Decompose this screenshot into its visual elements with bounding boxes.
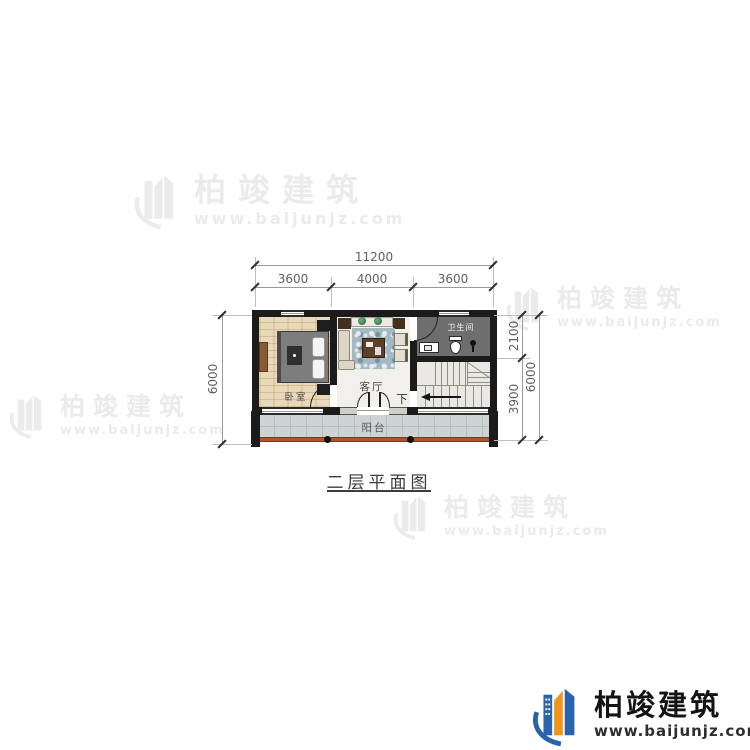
brand-building-icon bbox=[390, 489, 434, 543]
dim-top-overall: 11200 bbox=[334, 250, 414, 264]
stair-tread-line bbox=[441, 362, 442, 385]
watermark-brand-text: 柏竣建筑 bbox=[557, 286, 722, 311]
door-threshold bbox=[357, 410, 389, 411]
railing-post bbox=[324, 436, 331, 443]
living-room-label: 客厅 bbox=[352, 379, 392, 394]
stair-tread-line bbox=[459, 362, 460, 385]
wall-right bbox=[490, 310, 497, 415]
dim-left-overall: 6000 bbox=[206, 349, 220, 409]
brand-logo: 柏竣建筑 www.baijunjz.com bbox=[528, 682, 750, 748]
bedroom-window bbox=[281, 310, 304, 317]
stair-winder-line bbox=[467, 382, 490, 383]
balcony-corner-column bbox=[489, 411, 498, 447]
watermark-brand-text: 柏竣建筑 bbox=[60, 394, 225, 419]
pillow bbox=[312, 359, 325, 379]
wall-bath-stair bbox=[410, 356, 497, 362]
stair-winder-line bbox=[467, 372, 490, 373]
stair-tread-line bbox=[465, 386, 466, 407]
armchair bbox=[394, 349, 408, 362]
floor-plan-sheet: 柏竣建筑 www.baijunjz.com 柏竣建筑 www.baijunjz.… bbox=[0, 0, 750, 750]
watermark: 柏竣建筑 www.baijunjz.com bbox=[390, 489, 609, 543]
dim-top-seg-3: 3600 bbox=[413, 272, 493, 286]
dim-right-seg-2: 3900 bbox=[507, 369, 521, 429]
logo-url-text: www.baijunjz.com bbox=[594, 724, 750, 739]
watermark: 柏竣建筑 www.baijunjz.com bbox=[130, 168, 405, 232]
stair-winder-line bbox=[467, 377, 490, 378]
dim-right-seg-1: 2100 bbox=[507, 306, 521, 366]
stair-divider-line bbox=[417, 385, 490, 386]
dresser bbox=[259, 342, 268, 372]
plant bbox=[374, 317, 382, 325]
bedroom-balcony-window bbox=[262, 407, 323, 415]
wall-left bbox=[252, 310, 259, 415]
shower-stem bbox=[472, 346, 474, 352]
brand-building-icon bbox=[130, 168, 184, 232]
dimension-line-left bbox=[222, 315, 223, 444]
watermark-url-text: www.baijunjz.com bbox=[60, 424, 225, 437]
dimension-line-right-segments bbox=[522, 315, 523, 440]
stair-tread-line bbox=[447, 362, 448, 385]
dimension-line-top-overall bbox=[255, 265, 493, 266]
stair-tread-line bbox=[465, 362, 466, 385]
watermark: 柏竣建筑 www.baijunjz.com bbox=[6, 388, 225, 442]
dim-top-seg-2: 4000 bbox=[332, 272, 412, 286]
table-item bbox=[375, 347, 381, 355]
coffee-table bbox=[362, 338, 385, 358]
watermark: 柏竣建筑 www.baijunjz.com bbox=[503, 280, 722, 334]
dimension-line-right-overall bbox=[539, 315, 540, 440]
bed-footboard bbox=[277, 331, 281, 383]
stair-arrow-head bbox=[421, 393, 430, 401]
watermark-brand-text: 柏竣建筑 bbox=[444, 495, 609, 520]
stair-down-label: 下 bbox=[394, 391, 410, 407]
door-sill bbox=[389, 407, 407, 415]
door-sill bbox=[340, 407, 357, 415]
watermark-url-text: www.baijunjz.com bbox=[194, 211, 405, 227]
balcony-corner-column bbox=[251, 411, 260, 447]
stair-tread-line bbox=[481, 386, 482, 407]
wall-bedroom-living bbox=[330, 317, 337, 385]
watermark-url-text: www.baijunjz.com bbox=[557, 316, 722, 329]
stair-direction-arrow bbox=[429, 396, 461, 398]
wall-living-stair bbox=[410, 341, 417, 391]
sofa-chaise bbox=[338, 360, 355, 370]
side-cabinet bbox=[338, 318, 351, 329]
stair-tread-line bbox=[435, 362, 436, 385]
plant bbox=[358, 317, 366, 325]
railing-post bbox=[407, 436, 414, 443]
title-underline bbox=[327, 490, 431, 492]
armchair bbox=[394, 333, 408, 346]
brand-building-icon bbox=[6, 388, 50, 442]
balcony-railing bbox=[253, 437, 498, 442]
nightstand bbox=[317, 320, 330, 331]
wall-column bbox=[323, 407, 340, 415]
stair-tread-line bbox=[473, 386, 474, 407]
dim-right-overall: 6000 bbox=[524, 347, 538, 407]
bedroom-label: 卧室 bbox=[276, 389, 316, 403]
faucet bbox=[424, 345, 432, 351]
balcony-label: 阳台 bbox=[354, 420, 394, 435]
bathroom-window bbox=[439, 310, 469, 317]
stair-balcony-window bbox=[418, 407, 488, 415]
bathroom-label: 卫生间 bbox=[439, 322, 483, 333]
wall-column bbox=[407, 407, 418, 415]
brand-building-icon bbox=[528, 682, 586, 748]
table-item bbox=[366, 342, 373, 347]
dimension-line-top-segments bbox=[255, 287, 493, 288]
watermark-brand-text: 柏竣建筑 bbox=[194, 174, 405, 206]
pillow bbox=[312, 337, 325, 357]
logo-brand-text: 柏竣建筑 bbox=[594, 691, 750, 720]
bed-detail bbox=[293, 354, 296, 357]
sofa bbox=[338, 330, 350, 361]
stair-tread-line bbox=[453, 362, 454, 385]
watermark-url-text: www.baijunjz.com bbox=[444, 525, 609, 538]
dim-top-seg-1: 3600 bbox=[253, 272, 333, 286]
